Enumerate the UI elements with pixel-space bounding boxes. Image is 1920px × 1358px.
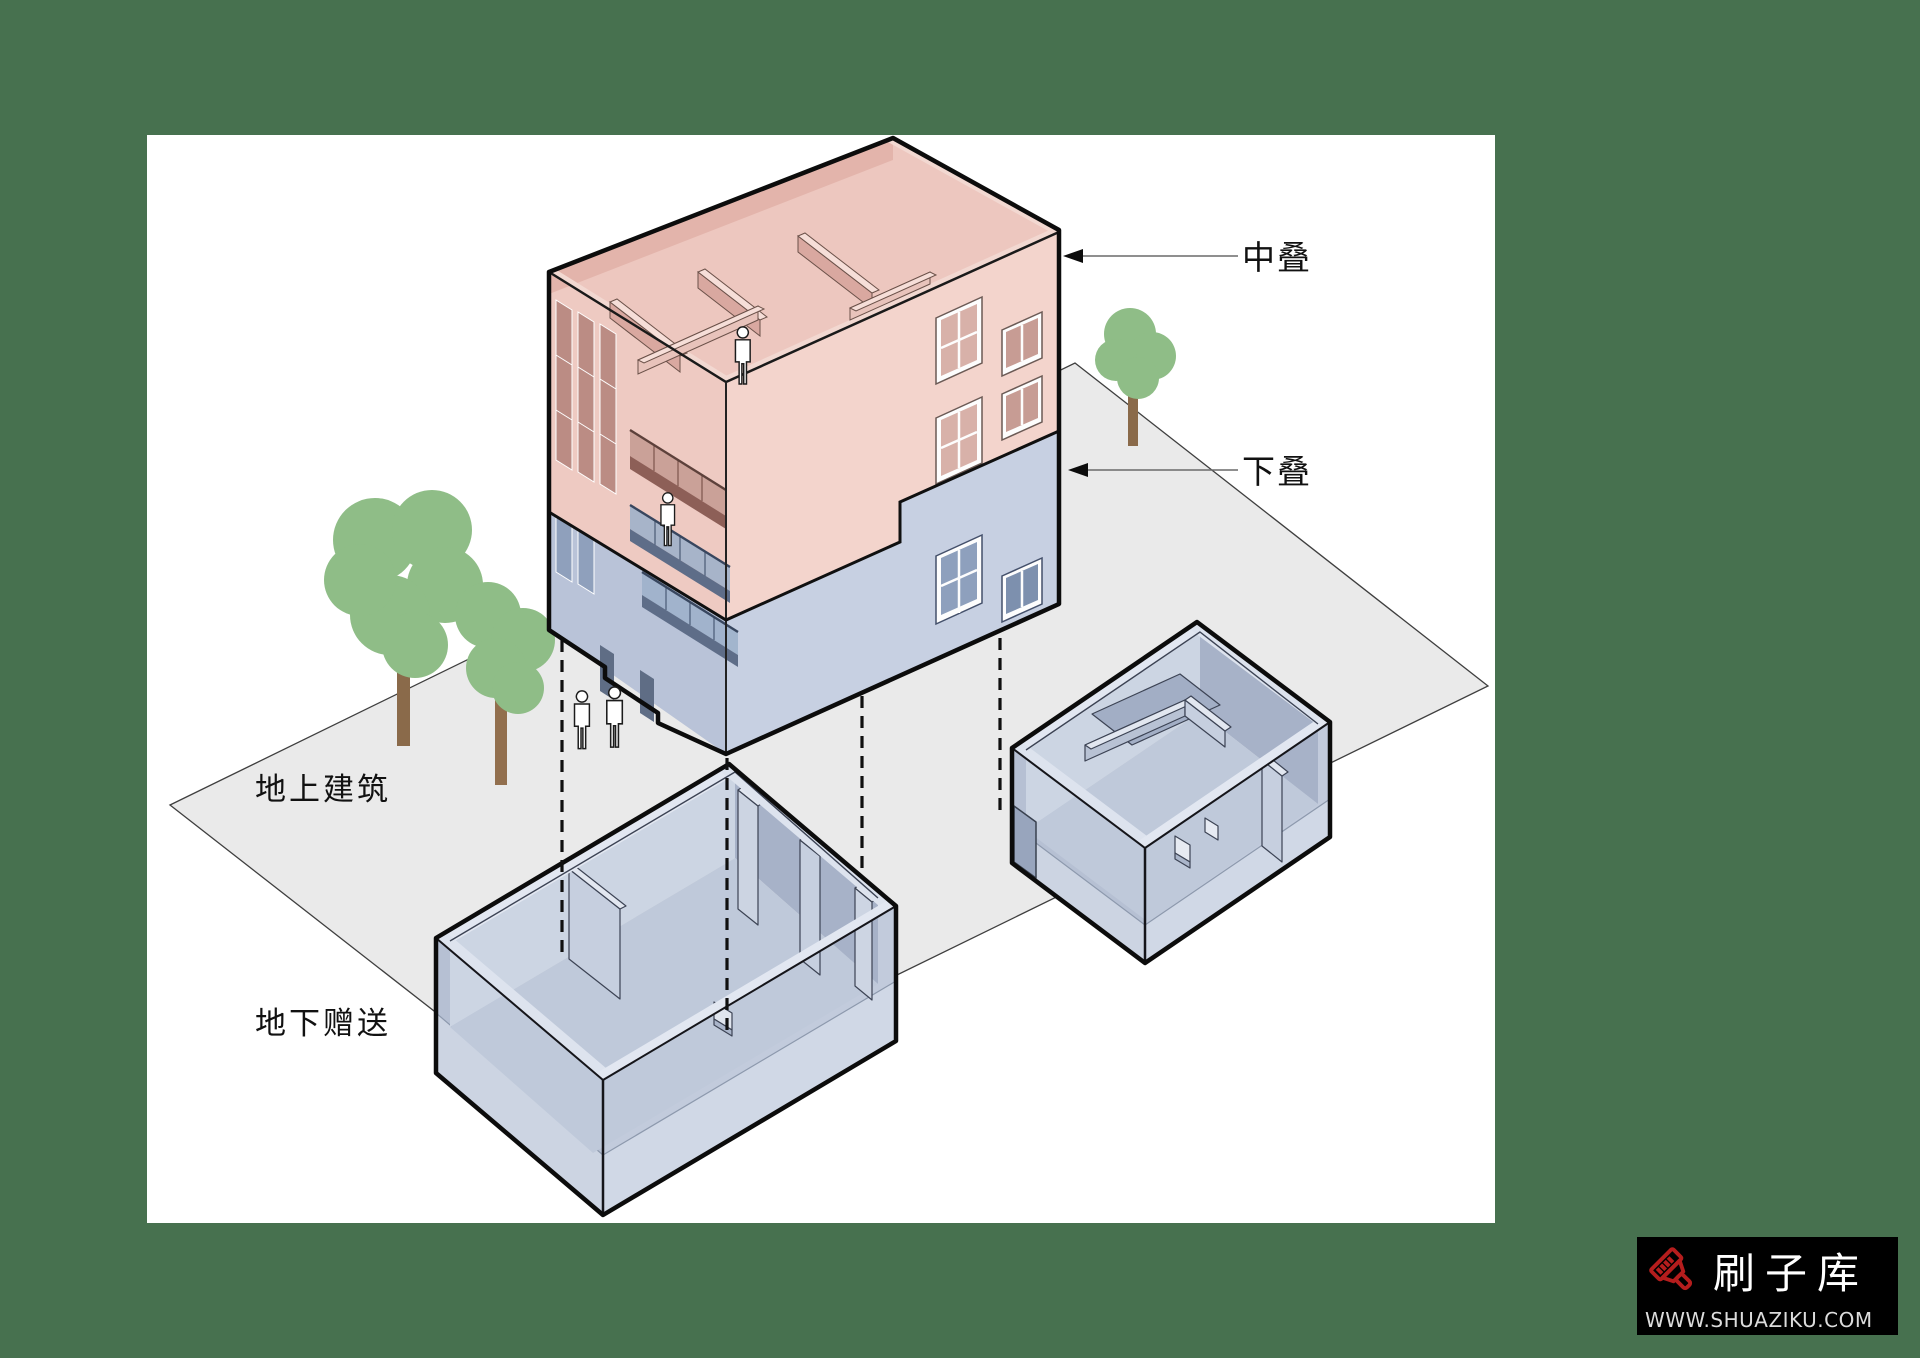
watermark-brand-row: 刷子库 [1645, 1241, 1890, 1307]
label-middle-stack: 中叠 [1242, 238, 1312, 277]
watermark-brand: 刷子库 [1713, 1253, 1869, 1295]
label-above-ground: 地上建筑 [255, 772, 391, 808]
watermark-logo: 刷子库 WWW.SHUAZIKU.COM [1637, 1237, 1898, 1335]
facade-strips [556, 300, 616, 494]
page: { "page": { "background": "#47714f", "ca… [0, 0, 1920, 1358]
architecture-diagram: 中叠 下叠 地上建筑 地下赠送 [0, 0, 1920, 1358]
label-lower-stack: 下叠 [1242, 452, 1312, 491]
watermark-url: WWW.SHUAZIKU.COM [1645, 1310, 1890, 1330]
paint-brush-icon [1645, 1243, 1707, 1305]
label-underground-bonus: 地下赠送 [255, 1006, 391, 1042]
